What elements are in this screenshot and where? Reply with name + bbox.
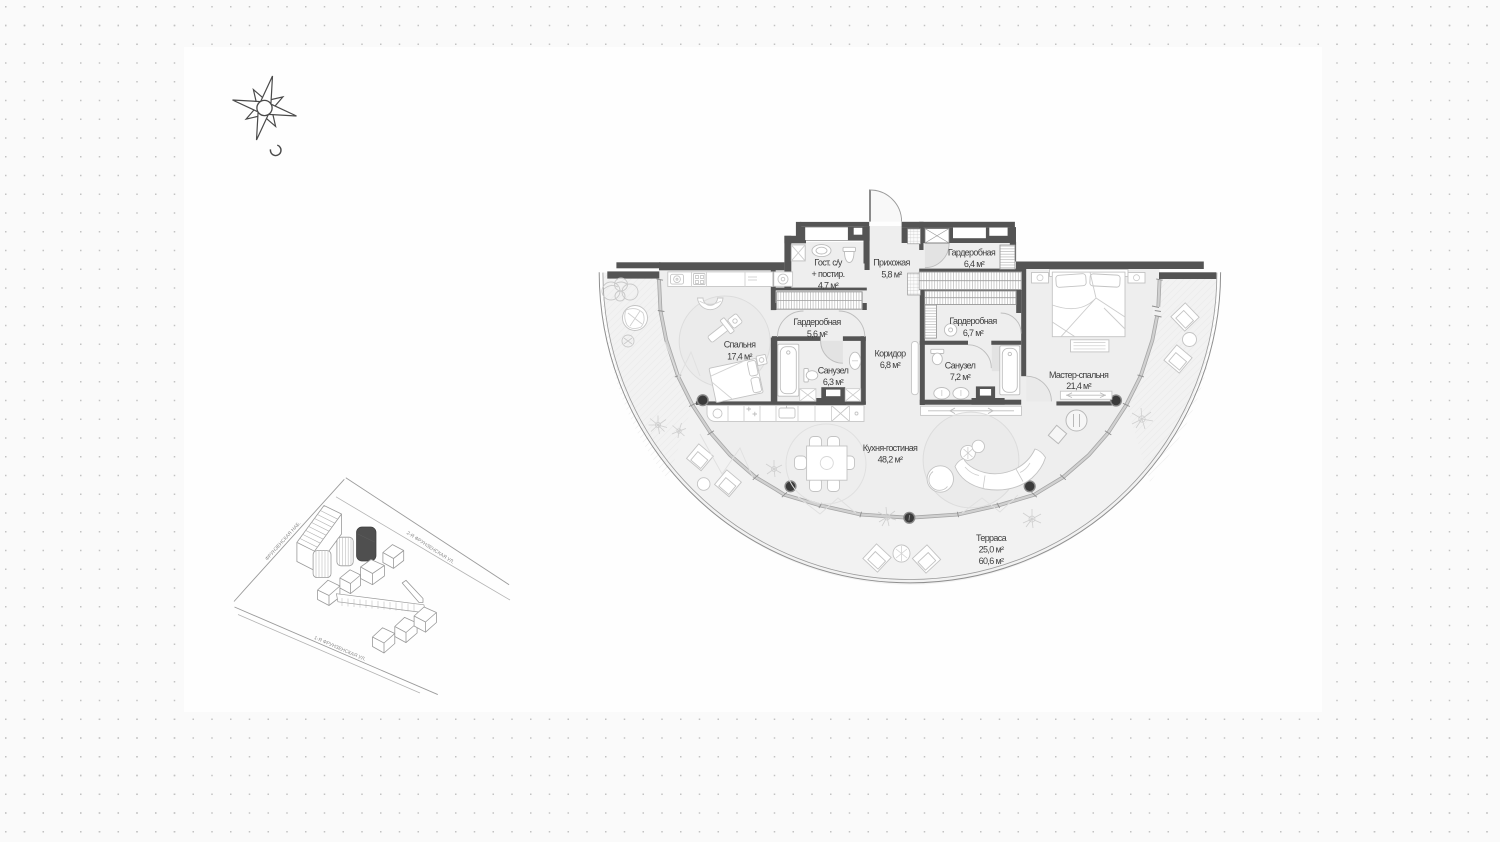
svg-text:Терраса: Терраса: [976, 533, 1007, 543]
svg-text:6,3 м²: 6,3 м²: [823, 377, 844, 387]
svg-text:Санузел: Санузел: [945, 361, 976, 371]
svg-text:6,4 м²: 6,4 м²: [964, 259, 985, 269]
svg-text:7,2 м²: 7,2 м²: [950, 372, 971, 382]
svg-text:4,7 м²: 4,7 м²: [818, 281, 839, 291]
svg-text:Гардеробная: Гардеробная: [949, 316, 997, 326]
svg-text:Прихожая: Прихожая: [873, 258, 910, 268]
svg-text:Кухня-гостиная: Кухня-гостиная: [863, 443, 918, 453]
svg-text:17,4 м²: 17,4 м²: [727, 352, 752, 362]
svg-text:60,6 м²: 60,6 м²: [979, 556, 1004, 566]
svg-text:Гост. с/у: Гост. с/у: [814, 258, 843, 268]
svg-text:Гардеробная: Гардеробная: [793, 317, 841, 327]
svg-text:Мастер-спальня: Мастер-спальня: [1049, 370, 1109, 380]
svg-text:+ постир.: + постир.: [812, 269, 845, 279]
svg-text:6,8 м²: 6,8 м²: [880, 360, 901, 370]
svg-text:25,0 м²: 25,0 м²: [979, 545, 1004, 555]
svg-text:Спальня: Спальня: [724, 340, 756, 350]
svg-text:21,4 м²: 21,4 м²: [1066, 381, 1091, 391]
svg-text:Гардеробная: Гардеробная: [948, 248, 996, 258]
svg-text:6,7 м²: 6,7 м²: [963, 328, 984, 338]
svg-text:Санузел: Санузел: [818, 366, 849, 376]
svg-text:5,8 м²: 5,8 м²: [881, 270, 902, 280]
svg-text:5,6 м²: 5,6 м²: [807, 329, 828, 339]
svg-text:Коридор: Коридор: [875, 349, 907, 359]
svg-text:48,2 м²: 48,2 м²: [878, 455, 903, 465]
